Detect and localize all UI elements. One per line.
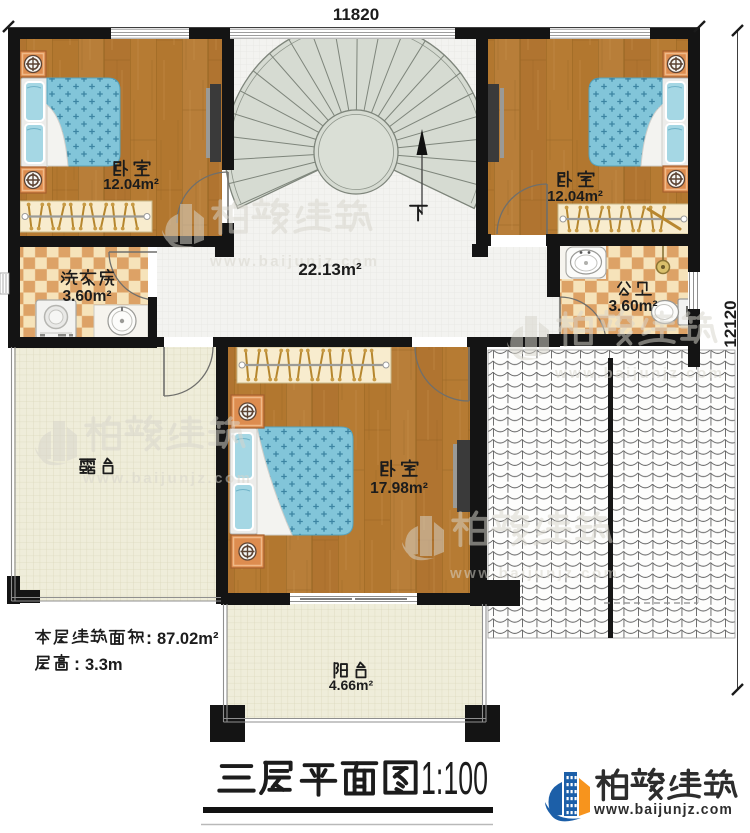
svg-text:3.60m²: 3.60m²: [62, 288, 111, 305]
svg-text:22.13m²: 22.13m²: [298, 260, 362, 279]
svg-text::: :: [146, 628, 152, 648]
svg-text:3.3m: 3.3m: [85, 656, 123, 674]
svg-text:12.04m²: 12.04m²: [547, 188, 603, 205]
svg-text:4.66m²: 4.66m²: [329, 677, 374, 693]
svg-text::: :: [74, 654, 80, 674]
svg-text:12.04m²: 12.04m²: [103, 176, 159, 193]
svg-text:12120: 12120: [721, 300, 740, 347]
svg-text:www.baijunjz.com: www.baijunjz.com: [554, 365, 724, 382]
svg-text:87.02m²: 87.02m²: [157, 630, 219, 648]
svg-text:11820: 11820: [333, 5, 379, 24]
svg-text:www.baijunjz.com: www.baijunjz.com: [449, 565, 619, 582]
svg-text:www.baijunjz.com: www.baijunjz.com: [593, 801, 733, 818]
svg-text:3.60m²: 3.60m²: [608, 298, 657, 315]
svg-text:1:100: 1:100: [421, 752, 488, 804]
svg-text:17.98m²: 17.98m²: [370, 480, 428, 497]
